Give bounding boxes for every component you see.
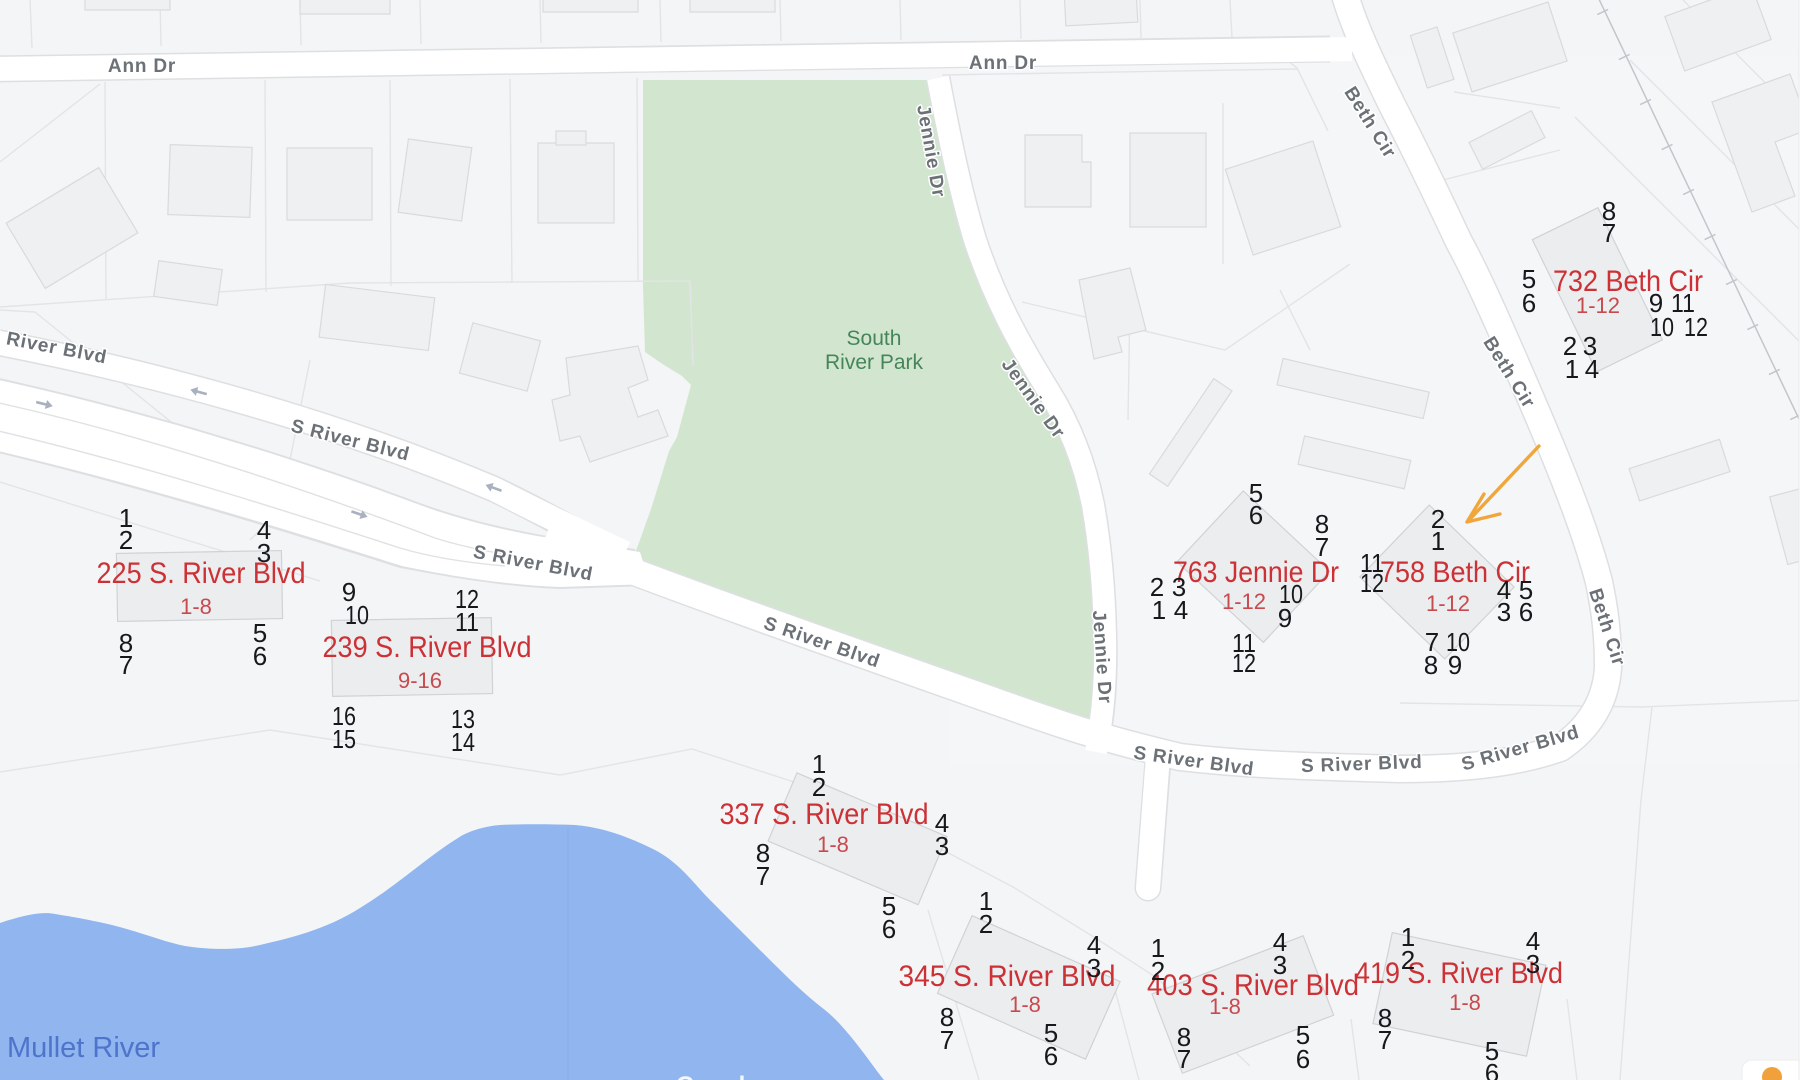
svg-text:1: 1 xyxy=(1565,354,1579,384)
svg-text:15: 15 xyxy=(332,724,356,754)
svg-text:8: 8 xyxy=(1424,650,1438,680)
svg-text:South: South xyxy=(847,327,902,350)
svg-text:Ann Dr: Ann Dr xyxy=(969,53,1037,74)
svg-text:9-16: 9-16 xyxy=(398,668,442,693)
svg-text:7: 7 xyxy=(1602,218,1616,248)
svg-text:4: 4 xyxy=(1585,354,1599,384)
svg-text:Mullet River: Mullet River xyxy=(7,1032,160,1064)
svg-text:345 S. River Blvd: 345 S. River Blvd xyxy=(899,960,1116,993)
svg-text:7: 7 xyxy=(1315,532,1329,562)
svg-text:6: 6 xyxy=(1296,1044,1310,1074)
svg-text:2: 2 xyxy=(979,909,993,939)
svg-text:River Park: River Park xyxy=(825,351,924,374)
svg-text:239 S. River Blvd: 239 S. River Blvd xyxy=(323,631,532,664)
svg-text:1-12: 1-12 xyxy=(1576,293,1620,318)
svg-text:225 S. River Blvd: 225 S. River Blvd xyxy=(97,557,306,590)
svg-text:3: 3 xyxy=(1273,950,1287,980)
svg-text:3: 3 xyxy=(935,831,949,861)
svg-text:1-12: 1-12 xyxy=(1426,591,1470,616)
svg-text:1-8: 1-8 xyxy=(1009,992,1041,1017)
svg-text:7: 7 xyxy=(1378,1025,1392,1055)
svg-text:3: 3 xyxy=(257,538,271,568)
svg-text:3: 3 xyxy=(1526,949,1540,979)
svg-text:Google: Google xyxy=(676,1072,759,1080)
svg-text:Ann Dr: Ann Dr xyxy=(108,56,176,77)
svg-text:S River Blvd: S River Blvd xyxy=(1301,752,1423,777)
svg-text:6: 6 xyxy=(1522,288,1536,318)
svg-text:4: 4 xyxy=(1174,595,1188,625)
svg-text:1-8: 1-8 xyxy=(817,832,849,857)
svg-text:1: 1 xyxy=(1431,526,1445,556)
svg-text:1-8: 1-8 xyxy=(1209,994,1241,1019)
svg-text:9: 9 xyxy=(1448,650,1462,680)
svg-text:6: 6 xyxy=(253,641,267,671)
svg-text:7: 7 xyxy=(1177,1044,1191,1074)
svg-text:6: 6 xyxy=(1519,597,1533,627)
svg-text:10: 10 xyxy=(1650,312,1674,342)
svg-text:6: 6 xyxy=(882,914,896,944)
svg-text:6: 6 xyxy=(1044,1041,1058,1071)
svg-text:2: 2 xyxy=(812,772,826,802)
svg-text:1: 1 xyxy=(1152,595,1166,625)
svg-text:7: 7 xyxy=(940,1025,954,1055)
svg-text:1-8: 1-8 xyxy=(180,594,212,619)
svg-text:11: 11 xyxy=(455,607,479,637)
svg-text:12: 12 xyxy=(1684,312,1708,342)
svg-text:3: 3 xyxy=(1497,597,1511,627)
svg-text:7: 7 xyxy=(756,861,770,891)
svg-text:2: 2 xyxy=(1151,956,1165,986)
svg-text:14: 14 xyxy=(451,727,475,757)
svg-text:403 S. River Blvd: 403 S. River Blvd xyxy=(1147,969,1359,1002)
svg-text:337 S. River Blvd: 337 S. River Blvd xyxy=(720,798,929,831)
svg-text:6: 6 xyxy=(1485,1058,1499,1080)
svg-text:1-8: 1-8 xyxy=(1449,990,1481,1015)
svg-text:7: 7 xyxy=(119,650,133,680)
svg-text:2: 2 xyxy=(119,525,133,555)
svg-text:1-12: 1-12 xyxy=(1222,589,1266,614)
svg-text:2: 2 xyxy=(1401,945,1415,975)
svg-text:3: 3 xyxy=(1087,953,1101,983)
svg-text:10: 10 xyxy=(345,600,369,630)
svg-text:12: 12 xyxy=(1232,648,1256,678)
svg-text:6: 6 xyxy=(1249,500,1263,530)
svg-text:9: 9 xyxy=(1278,603,1292,633)
svg-text:12: 12 xyxy=(1360,568,1384,598)
